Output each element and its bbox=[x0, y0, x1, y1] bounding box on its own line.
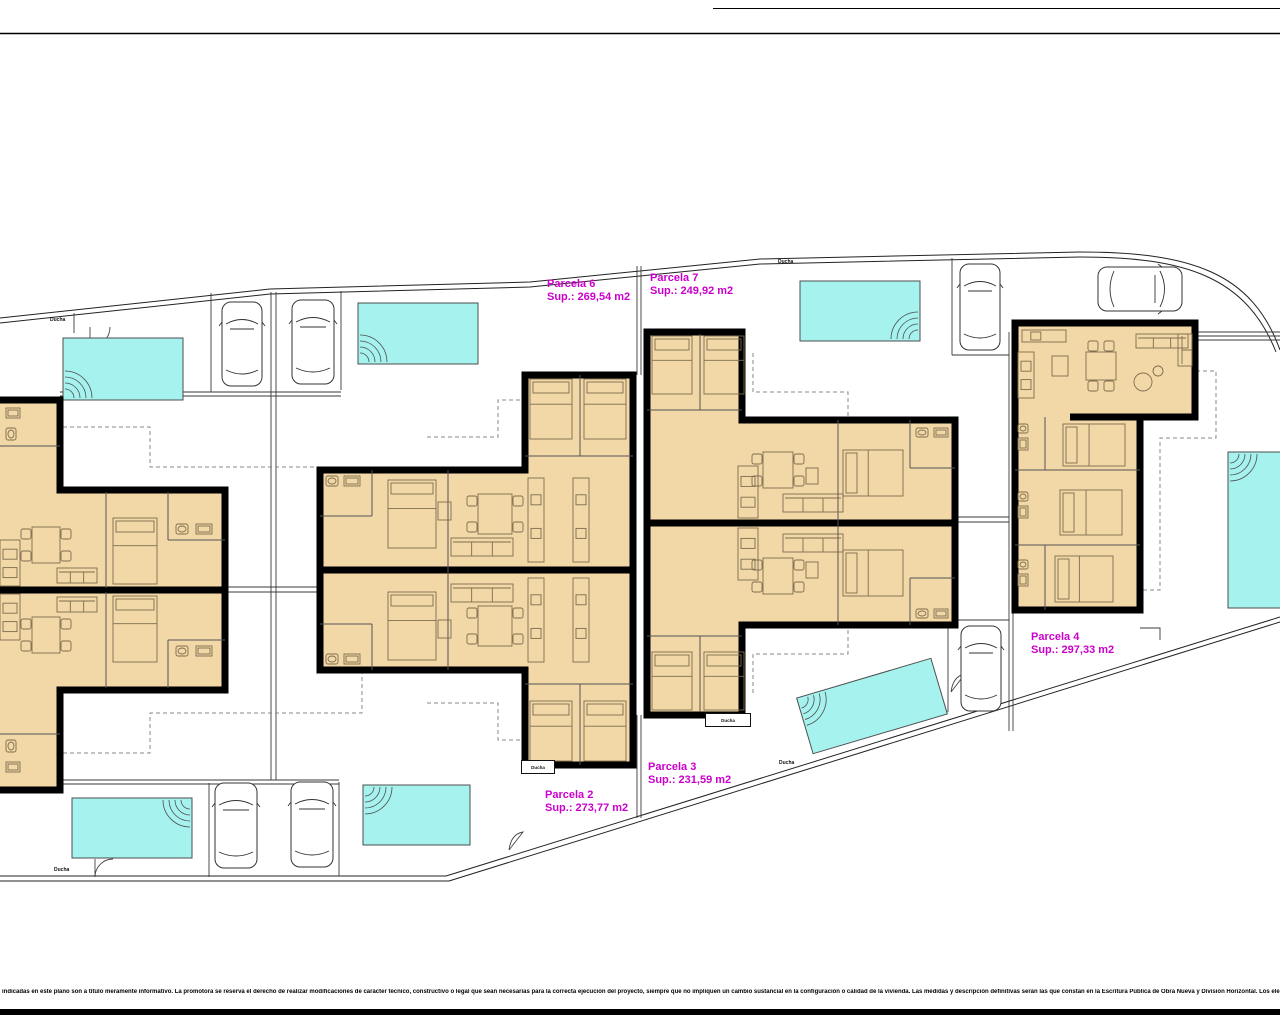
pool bbox=[363, 785, 470, 845]
house-outline bbox=[0, 400, 225, 790]
car bbox=[957, 264, 1003, 350]
house-outline bbox=[1015, 323, 1195, 610]
car bbox=[219, 302, 265, 386]
site-plan-page: indicadas en este plano son a título mer… bbox=[0, 0, 1280, 1024]
car bbox=[958, 626, 1004, 711]
bottom-border-bar bbox=[0, 1009, 1280, 1015]
pool bbox=[1228, 452, 1280, 608]
house-pair-parcela-1-5 bbox=[0, 400, 225, 790]
car bbox=[212, 783, 260, 868]
house-parcela-4 bbox=[1015, 323, 1195, 610]
car bbox=[289, 300, 337, 384]
site-plan-drawing bbox=[0, 0, 1280, 1024]
car bbox=[1098, 264, 1182, 314]
pool bbox=[63, 338, 183, 400]
pool bbox=[800, 281, 920, 341]
house-pair-parcela-7-3 bbox=[647, 332, 955, 715]
car bbox=[288, 782, 336, 867]
pool bbox=[72, 798, 192, 858]
house-pair-parcela-6-2 bbox=[320, 375, 633, 765]
pool bbox=[358, 303, 478, 364]
pool bbox=[797, 658, 948, 753]
